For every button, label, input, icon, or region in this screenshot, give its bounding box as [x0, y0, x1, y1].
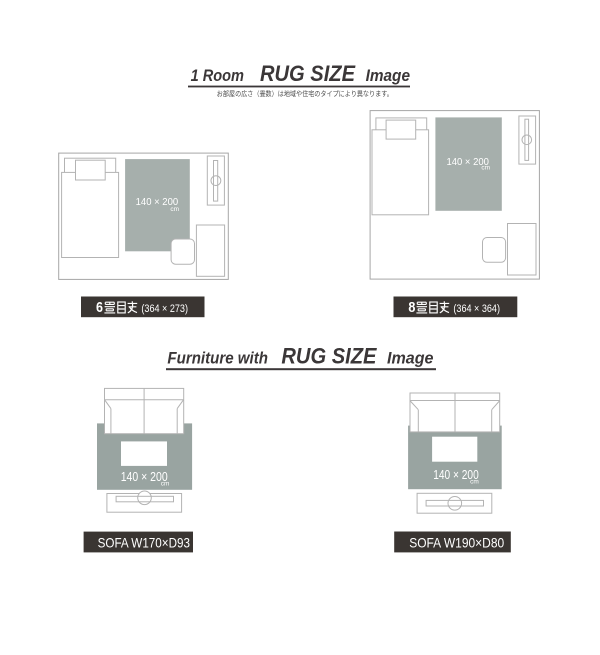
svg-text:(364 × 273): (364 × 273)	[141, 303, 188, 315]
svg-text:6: 6	[96, 299, 103, 316]
svg-text:RUG SIZE: RUG SIZE	[281, 344, 377, 369]
svg-text:Furniture with: Furniture with	[167, 349, 268, 368]
svg-text:RUG SIZE: RUG SIZE	[260, 61, 356, 86]
svg-text:cm: cm	[161, 481, 170, 488]
svg-text:cm: cm	[170, 206, 179, 213]
svg-text:cm: cm	[481, 165, 490, 172]
svg-text:(364 × 364): (364 × 364)	[453, 303, 500, 315]
svg-text:Image: Image	[366, 66, 410, 85]
svg-text:cm: cm	[470, 479, 479, 486]
svg-text:SOFA W170×D93: SOFA W170×D93	[98, 535, 191, 551]
svg-text:SOFA W190×D80: SOFA W190×D80	[409, 534, 504, 550]
svg-text:Image: Image	[387, 349, 434, 368]
svg-text:お部屋の広さ（畳数）は地域や住宅のタイプにより異なります。: お部屋の広さ（畳数）は地域や住宅のタイプにより異なります。	[217, 89, 393, 98]
svg-text:8: 8	[408, 299, 415, 316]
svg-text:1 Room: 1 Room	[191, 66, 244, 85]
